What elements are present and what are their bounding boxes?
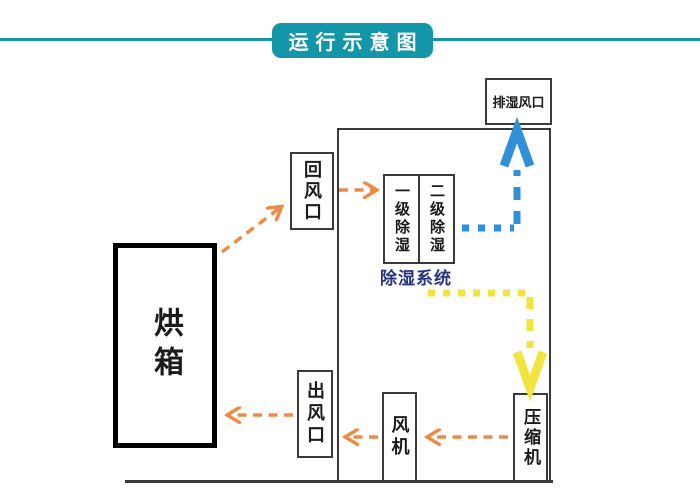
- compressor-box: 压缩机: [513, 393, 548, 482]
- exhaust-vent-label: 排湿风口: [492, 92, 544, 111]
- arrow-oven-to-return-vent: [222, 207, 281, 252]
- oven-box: 烘箱: [113, 243, 217, 448]
- fan-box: 风机: [382, 392, 417, 482]
- air-outlet-box: 出风口: [297, 370, 333, 458]
- return-air-vent-box: 回风口: [290, 152, 334, 230]
- oven-label: 烘箱: [143, 307, 187, 385]
- air-outlet-label: 出风口: [302, 381, 328, 447]
- floor-line: [125, 480, 553, 483]
- dehumid-system-label: 除湿系统: [380, 264, 464, 289]
- stage1-dehumidifier-label: 一级除湿: [391, 183, 412, 255]
- stage1-dehumidifier-box: 一级除湿: [383, 174, 420, 264]
- stage2-dehumidifier-label: 二级除湿: [426, 183, 447, 255]
- stage2-dehumidifier-box: 二级除湿: [418, 174, 455, 264]
- exhaust-vent-box: 排湿风口: [485, 78, 552, 125]
- page-title-text: 运行示意图: [282, 26, 424, 55]
- compressor-label: 压缩机: [518, 408, 543, 468]
- return-air-vent-label: 回风口: [299, 160, 325, 223]
- page-title: 运行示意图: [272, 23, 433, 58]
- fan-label: 风机: [387, 415, 413, 459]
